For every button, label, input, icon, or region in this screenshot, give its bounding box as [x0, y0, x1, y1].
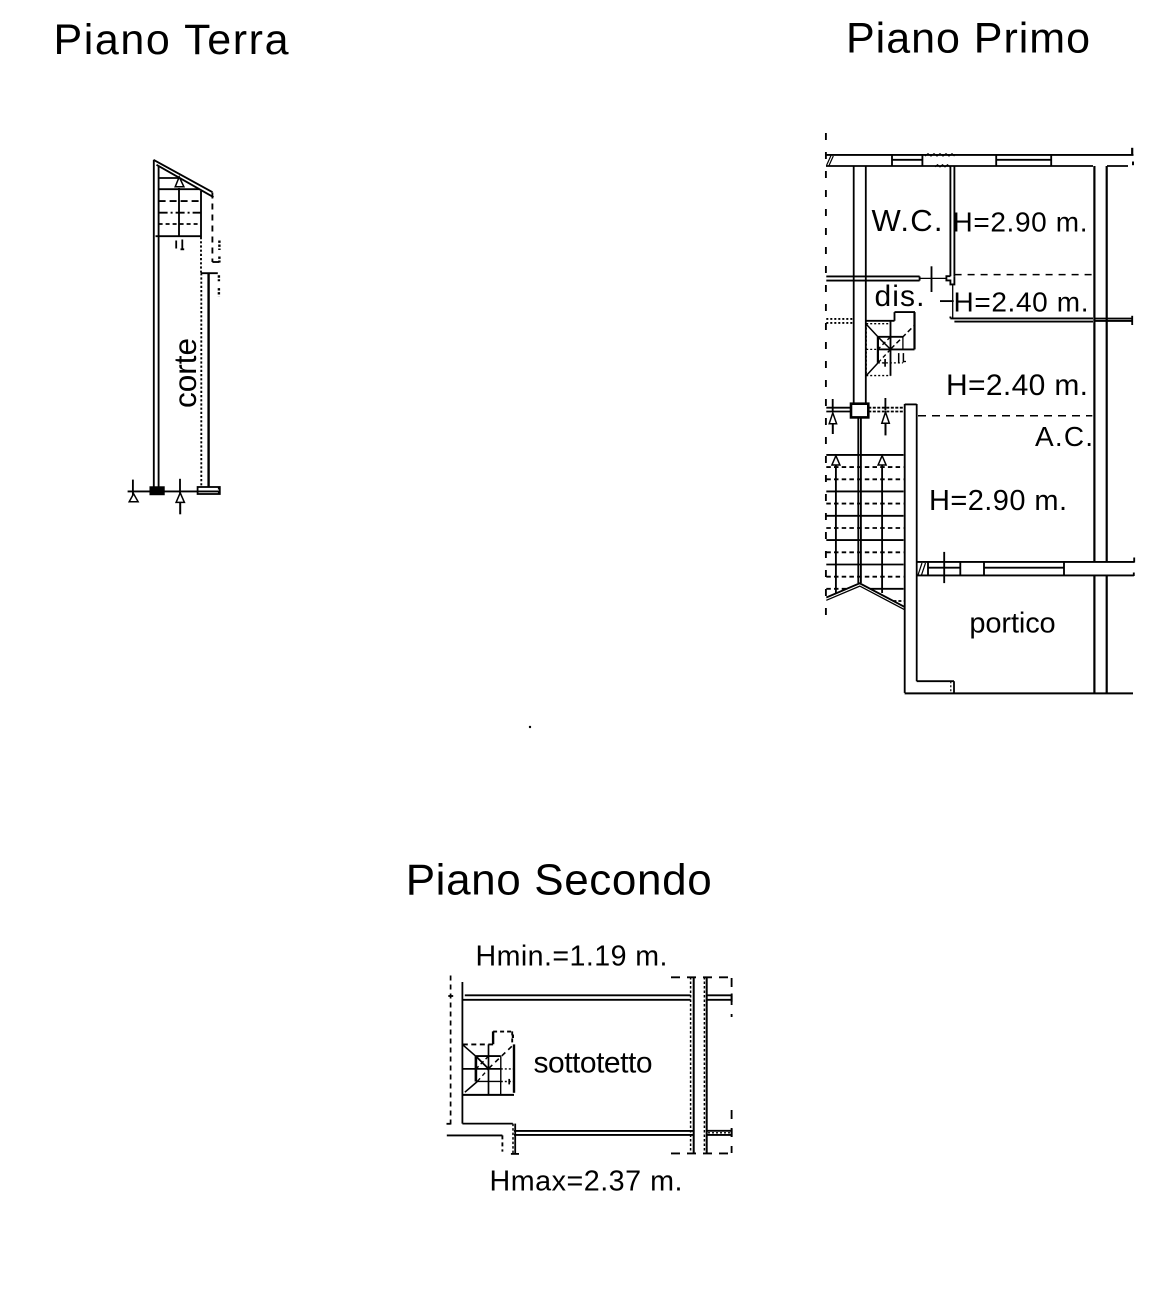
svg-text:corte: corte	[167, 338, 203, 408]
svg-text:dis.: dis.	[875, 280, 925, 313]
svg-text:W.C.: W.C.	[872, 203, 943, 238]
svg-text:Piano Terra: Piano Terra	[54, 16, 289, 64]
svg-text:H=2.40 m.: H=2.40 m.	[954, 287, 1089, 318]
svg-text:H=2.90 m.: H=2.90 m.	[953, 207, 1088, 238]
svg-text:Piano Secondo: Piano Secondo	[406, 856, 712, 905]
svg-text:portico: portico	[969, 608, 1055, 640]
svg-text:Piano Primo: Piano Primo	[846, 15, 1090, 63]
svg-text:Hmax=2.37 m.: Hmax=2.37 m.	[490, 1166, 683, 1198]
svg-text:A.C.: A.C.	[1035, 421, 1093, 452]
svg-text:sottotetto: sottotetto	[534, 1047, 653, 1080]
svg-text:H=2.40 m.: H=2.40 m.	[946, 369, 1088, 402]
svg-text:H=2.90 m.: H=2.90 m.	[929, 485, 1067, 517]
svg-text:Hmin.=1.19 m.: Hmin.=1.19 m.	[476, 941, 668, 973]
